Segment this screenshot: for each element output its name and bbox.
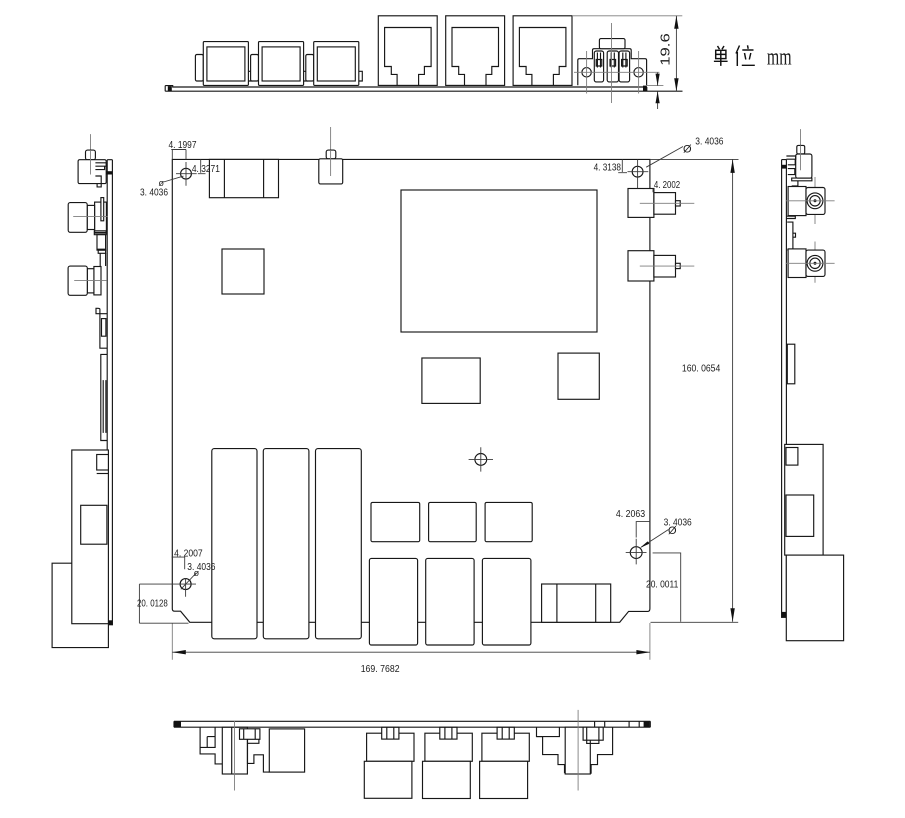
svg-text:4. 3138: 4. 3138 [594,162,622,173]
svg-text:3. 4036: 3. 4036 [695,136,724,147]
svg-text:4. 2007: 4. 2007 [174,549,203,560]
svg-text:3. 4036: 3. 4036 [664,517,692,528]
svg-text:ø: ø [159,178,165,188]
svg-text:4. 2002: 4. 2002 [654,180,681,191]
svg-text:20. 0128: 20. 0128 [137,598,168,609]
svg-text:3. 4036: 3. 4036 [140,187,168,198]
svg-text:19.6: 19.6 [658,33,672,66]
svg-text:mm: mm [767,44,792,70]
svg-text:4. 3271: 4. 3271 [192,164,220,175]
svg-text:20. 0011: 20. 0011 [646,580,679,591]
svg-text:169. 7682: 169. 7682 [361,664,400,675]
svg-text:160. 0654: 160. 0654 [682,364,721,375]
svg-text:3. 4036: 3. 4036 [187,562,216,573]
svg-text:Ø: Ø [683,144,692,156]
svg-text:4. 2063: 4. 2063 [616,509,646,520]
svg-text:4. 1997: 4. 1997 [169,140,197,151]
